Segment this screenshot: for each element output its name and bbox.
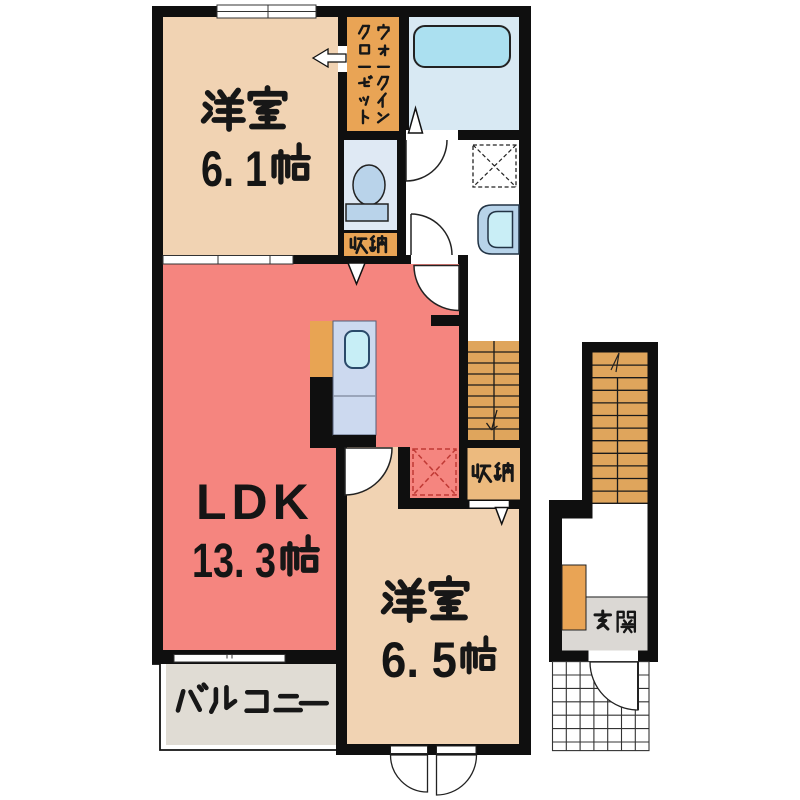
svg-text:6. 5: 6. 5 [381,632,457,688]
svg-text:LDK: LDK [196,474,314,530]
svg-text:6. 1: 6. 1 [201,141,267,197]
svg-text:13. 3: 13. 3 [192,535,276,588]
